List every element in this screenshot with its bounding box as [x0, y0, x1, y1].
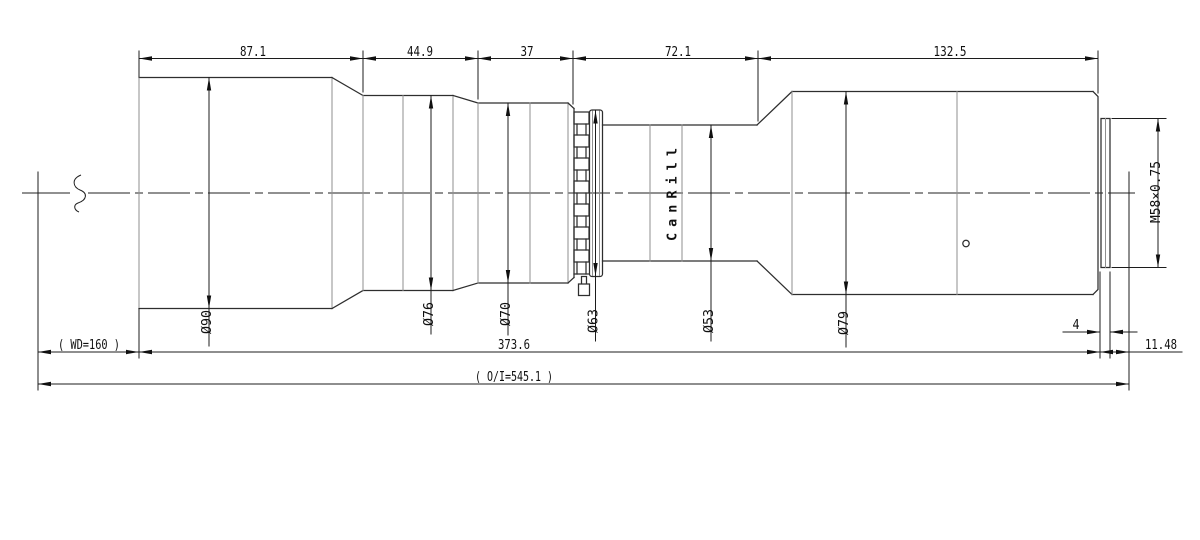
dim-section4-length: 72.1 — [665, 45, 691, 60]
brand-label: CanRill — [665, 142, 681, 241]
diameter-dimensions: Ø90 Ø76 Ø70 Ø63 Ø53 Ø79 M58×0.75 — [200, 78, 1166, 348]
drawing-canvas: CanRill 87.1 44.9 37 72.1 132.5 Ø90 — [0, 0, 1200, 540]
knurled-ring — [574, 110, 603, 296]
thread-length-label: 4 — [1073, 318, 1080, 333]
flange-back-label: 11.48 — [1145, 338, 1177, 353]
dia-53-label: Ø53 — [702, 309, 717, 333]
dia-70-label: Ø70 — [499, 302, 514, 326]
object-image-distance-label: ( O/I=545.1 ) — [475, 370, 553, 385]
lens-technical-drawing: CanRill 87.1 44.9 37 72.1 132.5 Ø90 — [0, 0, 1200, 540]
dim-front-length: 87.1 — [240, 45, 266, 60]
top-dimension-chain: 87.1 44.9 37 72.1 132.5 — [139, 45, 1098, 121]
barrel-length-label: 373.6 — [498, 338, 530, 353]
dia-63-label: Ø63 — [587, 309, 602, 333]
thread-spec-label: M58×0.75 — [1149, 161, 1164, 223]
dia-90-label: Ø90 — [200, 310, 215, 334]
dia-76-label: Ø76 — [422, 302, 437, 326]
break-squiggle-symbol — [74, 175, 85, 212]
working-distance-label: ( WD=160 ) — [58, 338, 120, 353]
lock-screw — [579, 277, 590, 296]
dim-section2-length: 44.9 — [407, 45, 433, 60]
dia-79-label: Ø79 — [837, 311, 852, 335]
index-dot — [963, 240, 969, 246]
dim-section3-length: 37 — [521, 45, 534, 60]
dim-rear-length: 132.5 — [934, 45, 967, 60]
